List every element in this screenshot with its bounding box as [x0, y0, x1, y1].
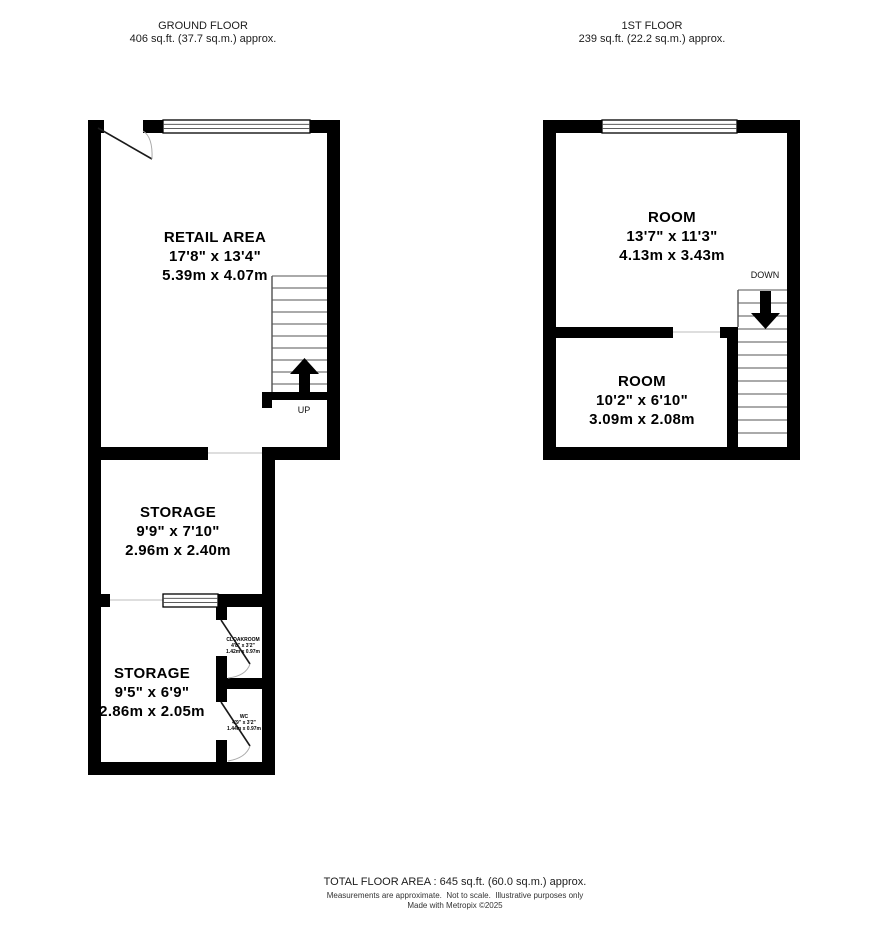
floorplan-page: GROUND FLOOR 406 sq.ft. (37.7 sq.m.) app… — [0, 0, 886, 935]
first-floor-header: 1ST FLOOR 239 sq.ft. (22.2 sq.m.) approx… — [579, 20, 726, 46]
room-size-metric: 1.42m x 0.97m — [226, 649, 260, 655]
wc-label: WC 4'9" x 3'2" 1.44m x 0.97m — [227, 714, 261, 732]
first-floor-area: 239 sq.ft. (22.2 sq.m.) approx. — [579, 33, 726, 46]
room-size-metric: 4.13m x 3.43m — [619, 246, 725, 265]
down-stairs-label: DOWN — [751, 270, 780, 280]
up-stairs-label: UP — [298, 405, 311, 415]
room-name: STORAGE — [99, 664, 205, 683]
cloakroom-label: CLOAKROOM 4'8" x 3'2" 1.42m x 0.97m — [226, 637, 260, 655]
storage2-label: STORAGE 9'5" x 6'9" 2.86m x 2.05m — [99, 664, 205, 721]
room-size-imperial: 10'2" x 6'10" — [589, 391, 695, 410]
room-name: RETAIL AREA — [162, 228, 268, 247]
room-window-symbol — [602, 120, 737, 133]
room-name: ROOM — [619, 208, 725, 227]
room-size-metric: 5.39m x 4.07m — [162, 266, 268, 285]
ground-floor-header: GROUND FLOOR 406 sq.ft. (37.7 sq.m.) app… — [130, 20, 277, 46]
footer-disclaimer: Measurements are approximate. Not to sca… — [327, 891, 584, 901]
room-size-imperial: 13'7" x 11'3" — [619, 227, 725, 246]
retail-area-label: RETAIL AREA 17'8" x 13'4" 5.39m x 4.07m — [162, 228, 268, 285]
floorplan-canvas — [0, 0, 886, 935]
first-floor-title: 1ST FLOOR — [579, 20, 726, 33]
room-size-metric: 2.86m x 2.05m — [99, 702, 205, 721]
room-size-metric: 3.09m x 2.08m — [589, 410, 695, 429]
retail-window-symbol — [163, 120, 310, 133]
up-arrow-icon — [290, 358, 319, 396]
room-size-imperial: 17'8" x 13'4" — [162, 247, 268, 266]
storage-window-symbol — [163, 594, 218, 607]
room-name: ROOM — [589, 372, 695, 391]
ground-floor-area: 406 sq.ft. (37.7 sq.m.) approx. — [130, 33, 277, 46]
room1-label: ROOM 13'7" x 11'3" 4.13m x 3.43m — [619, 208, 725, 265]
room-name: STORAGE — [125, 503, 231, 522]
room2-label: ROOM 10'2" x 6'10" 3.09m x 2.08m — [589, 372, 695, 429]
room-size-metric: 2.96m x 2.40m — [125, 541, 231, 560]
footer-credit: Made with Metropix ©2025 — [407, 901, 502, 911]
down-arrow-icon — [751, 291, 780, 329]
total-floor-area: TOTAL FLOOR AREA : 645 sq.ft. (60.0 sq.m… — [324, 876, 587, 888]
room-size-imperial: 9'9" x 7'10" — [125, 522, 231, 541]
room-size-imperial: 9'5" x 6'9" — [99, 683, 205, 702]
room-size-metric: 1.44m x 0.97m — [227, 726, 261, 732]
ground-floor-title: GROUND FLOOR — [130, 20, 277, 33]
storage1-label: STORAGE 9'9" x 7'10" 2.96m x 2.40m — [125, 503, 231, 560]
